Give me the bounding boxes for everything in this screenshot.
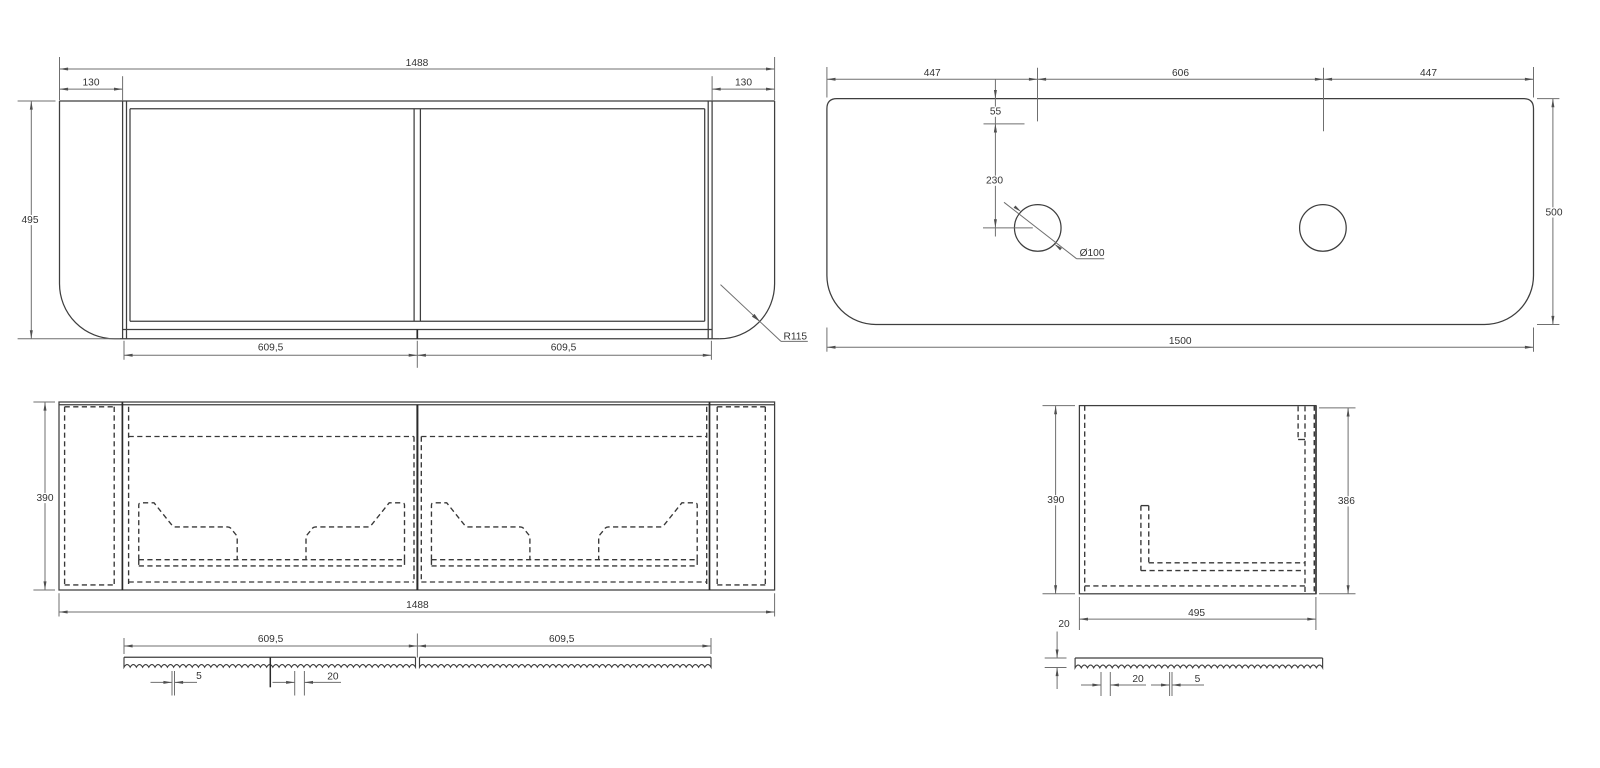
svg-text:20: 20 (1058, 619, 1070, 630)
svg-text:609,5: 609,5 (551, 343, 577, 354)
svg-text:495: 495 (1188, 608, 1205, 619)
svg-text:230: 230 (986, 176, 1003, 187)
svg-text:495: 495 (22, 215, 39, 226)
svg-text:609,5: 609,5 (258, 634, 284, 645)
svg-text:609,5: 609,5 (549, 634, 575, 645)
svg-text:606: 606 (1172, 68, 1189, 79)
svg-text:447: 447 (924, 68, 941, 79)
svg-text:500: 500 (1546, 207, 1563, 218)
svg-text:5: 5 (1195, 674, 1201, 685)
svg-text:20: 20 (1132, 674, 1144, 685)
svg-text:55: 55 (990, 107, 1002, 118)
svg-text:20: 20 (327, 672, 339, 683)
svg-text:609,5: 609,5 (258, 343, 284, 354)
svg-text:447: 447 (1420, 68, 1437, 79)
svg-text:386: 386 (1338, 496, 1355, 507)
svg-text:Ø100: Ø100 (1080, 248, 1105, 259)
svg-text:130: 130 (83, 78, 100, 89)
svg-text:130: 130 (735, 78, 752, 89)
svg-text:390: 390 (37, 493, 54, 504)
svg-text:1488: 1488 (406, 600, 429, 611)
svg-text:5: 5 (196, 671, 202, 682)
svg-text:R115: R115 (784, 332, 808, 343)
svg-text:390: 390 (1047, 495, 1064, 506)
svg-text:1500: 1500 (1169, 336, 1192, 347)
svg-text:1488: 1488 (406, 58, 429, 69)
